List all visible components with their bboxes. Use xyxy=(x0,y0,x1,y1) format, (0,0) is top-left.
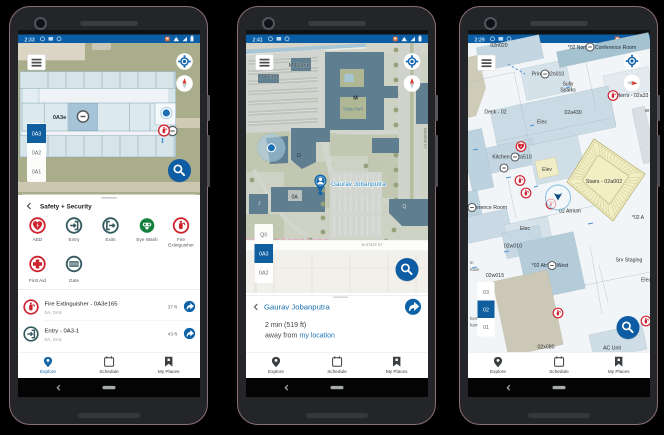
svg-text:Gaurav Jobanputra: Gaurav Jobanputra xyxy=(331,181,386,188)
svg-text:Elev: Elev xyxy=(542,167,552,173)
svg-text:Deck - 02: Deck - 02 xyxy=(484,110,506,116)
svg-text:37 ft: 37 ft xyxy=(167,305,177,311)
svg-text:Explore: Explore xyxy=(40,369,56,374)
svg-text:Schedule: Schedule xyxy=(549,369,569,374)
svg-text:Elec: Elec xyxy=(640,278,649,284)
svg-text:Explore: Explore xyxy=(268,369,284,374)
svg-text:Entry: Entry xyxy=(68,237,80,242)
svg-text:2:33: 2:33 xyxy=(24,38,34,44)
svg-text:Q: Q xyxy=(402,204,406,210)
svg-text:Sparks: Sparks xyxy=(560,88,576,94)
svg-text:O Plant: O Plant xyxy=(259,74,279,80)
svg-text:2 min (519 ft): 2 min (519 ft) xyxy=(265,322,306,329)
svg-text:Entry - 0A3-1: Entry - 0A3-1 xyxy=(44,329,79,335)
svg-text:First Aid: First Aid xyxy=(29,278,46,283)
svg-text:2:29: 2:29 xyxy=(474,38,484,44)
svg-text:0A: 0A xyxy=(291,195,298,201)
svg-text:0A3e: 0A3e xyxy=(52,115,65,121)
svg-text:0A, 0A3: 0A, 0A3 xyxy=(44,337,61,343)
svg-text:M: M xyxy=(353,96,358,102)
svg-text:0A, 0A3: 0A, 0A3 xyxy=(44,310,61,316)
svg-text:2:41: 2:41 xyxy=(252,38,262,44)
svg-text:away from: away from xyxy=(265,333,297,340)
svg-text:W: W xyxy=(644,108,649,113)
svg-text:Gaurav Jobanputra: Gaurav Jobanputra xyxy=(264,303,331,312)
svg-text:hann: hann xyxy=(470,267,480,272)
svg-text:my location: my location xyxy=(299,333,335,340)
svg-text:Explore: Explore xyxy=(490,369,506,374)
svg-text:02: 02 xyxy=(483,307,489,313)
svg-text:Extinguisher: Extinguisher xyxy=(168,243,194,248)
svg-text:*02 A: *02 A xyxy=(632,215,645,221)
svg-text:m: m xyxy=(470,260,474,265)
svg-text:02n020: 02n020 xyxy=(490,43,507,49)
svg-text:My Places: My Places xyxy=(385,369,407,374)
svg-text:Fire Extinguisher - 0A3e165: Fire Extinguisher - 0A3e165 xyxy=(44,302,118,308)
svg-text:Fire: Fire xyxy=(176,237,184,242)
svg-text:Tuttle Park: Tuttle Park xyxy=(342,107,363,112)
svg-text:03: 03 xyxy=(483,290,489,296)
svg-text:43 ft: 43 ft xyxy=(167,332,177,338)
svg-text:02w010: 02w010 xyxy=(503,244,521,250)
svg-text:Elec: Elec xyxy=(519,226,529,232)
svg-text:0A1: 0A1 xyxy=(31,170,41,176)
svg-text:Stairs - 02a002: Stairs - 02a002 xyxy=(585,179,622,185)
svg-text:0A3: 0A3 xyxy=(31,132,41,138)
svg-text:0A2: 0A2 xyxy=(31,151,41,157)
svg-text:Q0: Q0 xyxy=(260,233,267,239)
svg-text:Exits: Exits xyxy=(105,237,116,242)
svg-text:Elec: Elec xyxy=(536,120,546,126)
svg-text:W STATE ST: W STATE ST xyxy=(361,243,383,247)
svg-text:01: 01 xyxy=(483,325,489,331)
svg-text:Srv Staging: Srv Staging xyxy=(615,258,642,264)
svg-text:0A3: 0A3 xyxy=(258,252,268,258)
svg-text:M Plant: M Plant xyxy=(288,63,308,69)
svg-text:hem: hem xyxy=(470,316,479,321)
svg-text:MONROE ST: MONROE ST xyxy=(423,128,427,149)
svg-text:Men's - 02a33: Men's - 02a33 xyxy=(615,93,648,99)
svg-text:Schedule: Schedule xyxy=(327,369,347,374)
svg-text:02a430: 02a430 xyxy=(564,110,581,116)
svg-text:D: D xyxy=(297,153,301,159)
svg-text:Schedule: Schedule xyxy=(99,369,119,374)
svg-text:0A2: 0A2 xyxy=(258,271,268,277)
svg-text:*02 North A Conference Room: *02 North A Conference Room xyxy=(567,45,636,51)
svg-text:AC Unit: AC Unit xyxy=(603,346,621,352)
svg-text:Safety + Security: Safety + Security xyxy=(40,204,92,211)
svg-text:My Places: My Places xyxy=(607,369,629,374)
svg-text:ham: ham xyxy=(470,323,479,328)
svg-text:02x080: 02x080 xyxy=(537,345,554,351)
svg-text:AED: AED xyxy=(32,237,42,242)
svg-text:Eye Wash: Eye Wash xyxy=(136,237,158,242)
svg-text:My Places: My Places xyxy=(157,369,179,374)
svg-text:Gate: Gate xyxy=(68,278,79,283)
svg-text:02w015: 02w015 xyxy=(485,273,503,279)
